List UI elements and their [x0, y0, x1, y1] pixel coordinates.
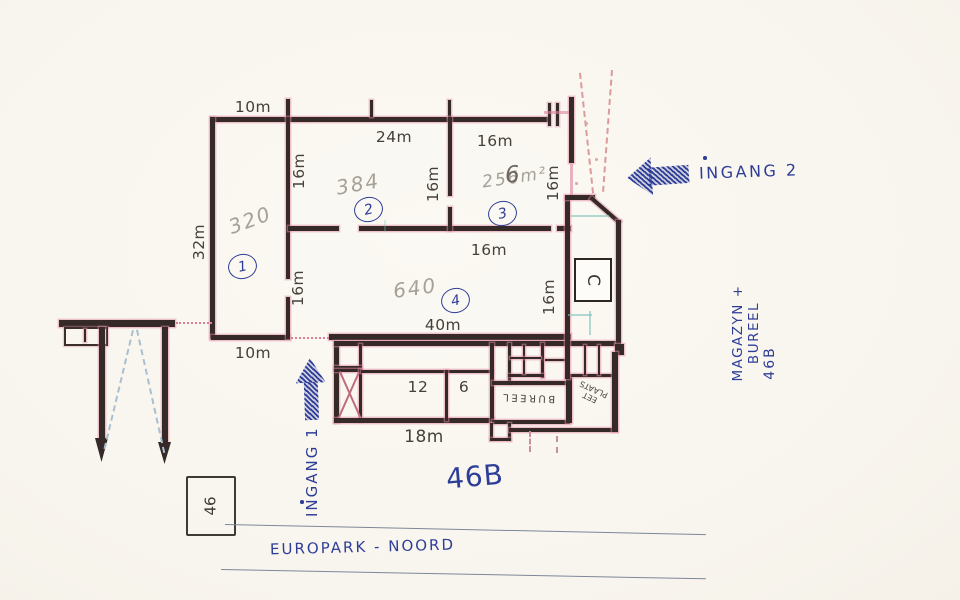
- wall-tick: [556, 103, 559, 126]
- wall-segment: [569, 97, 574, 163]
- wall-segment: [508, 343, 511, 384]
- ingang2-note: INGANG 2: [699, 160, 799, 182]
- parcel-46-label: 46: [202, 496, 220, 515]
- wall-tick: [286, 99, 290, 117]
- floor-plan-scan: C 10m 24m 16m 16m 16m 16m 16m 16m 16m 32…: [0, 0, 960, 600]
- dim-label-room4-left-16m: 16m: [289, 266, 307, 310]
- magazyn-46b-note: 46B: [762, 337, 778, 389]
- cyan-line: [589, 311, 591, 335]
- wall-segment: [523, 345, 525, 374]
- dashed-line: [556, 436, 558, 453]
- magazyn-bureel-note: MAGAZYN + BUREEL: [730, 251, 762, 415]
- wall-segment: [616, 220, 621, 348]
- doorway-dotted-line: [291, 337, 329, 339]
- wall-segment: [359, 344, 362, 368]
- dotted-connector: [176, 322, 212, 324]
- cyan-line: [571, 215, 609, 217]
- dim-label-room3-top-16m: 16m: [473, 132, 517, 150]
- stray-dot: [595, 158, 598, 161]
- wall-segment: [584, 345, 586, 375]
- dim-label-room2-left-16m: 16m: [290, 149, 308, 193]
- wall-segment: [510, 357, 541, 359]
- wall-segment: [448, 207, 452, 231]
- dim-label-room2-right-16m: 16m: [424, 162, 442, 206]
- ingang1-arrow: [295, 357, 327, 420]
- stray-dot: [585, 122, 588, 125]
- arrow-head: [295, 357, 326, 383]
- pencil-digit-overwrite: 6: [504, 161, 522, 188]
- parcel-46-box: 46: [186, 476, 236, 536]
- dim-label-32m: 32m: [190, 220, 208, 264]
- ingang2-arrow: [626, 155, 690, 197]
- wall-segment: [210, 117, 215, 339]
- wall-tick: [448, 100, 451, 117]
- wall-segment: [329, 334, 571, 340]
- room-number-3-text: 3: [496, 205, 508, 223]
- wall-segment: [286, 117, 290, 279]
- room-number-2-text: 2: [362, 201, 374, 219]
- dim-label-18m: 18m: [402, 427, 446, 447]
- wall-segment: [59, 320, 175, 327]
- ingang1-note: INGANG 1: [303, 417, 321, 517]
- dim-label-40m: 40m: [421, 316, 465, 334]
- bureel-room-label: BUREEL: [497, 391, 559, 404]
- wall-segment: [84, 329, 86, 342]
- wall-segment: [566, 374, 616, 377]
- wall-segment: [211, 117, 549, 122]
- wall-segment: [211, 335, 290, 340]
- wall-segment: [334, 418, 494, 423]
- wall-tick: [548, 103, 551, 126]
- site-46b-note: 46B: [445, 458, 505, 496]
- wall-segment: [545, 359, 567, 361]
- wall-tick: [370, 100, 373, 117]
- wall-segment: [541, 343, 544, 378]
- wall-segment: [490, 438, 511, 441]
- wall-segment: [334, 342, 339, 423]
- dim-label-bottom-10m: 10m: [231, 344, 275, 362]
- c-room-label: C: [583, 274, 603, 286]
- gate-post: [99, 327, 105, 445]
- dim-label-room4-right-16m: 16m: [540, 275, 558, 319]
- wall-segment: [445, 370, 448, 421]
- room-number-1-text: 1: [236, 258, 248, 276]
- marker-stroke: [544, 111, 570, 114]
- stray-dot: [575, 182, 578, 185]
- dashed-line: [529, 431, 531, 452]
- dim-label-room4-top-16m: 16m: [467, 241, 511, 259]
- arrow-body: [649, 165, 690, 185]
- wall-segment: [598, 345, 600, 375]
- wall-segment: [492, 420, 570, 424]
- wall-segment: [288, 226, 339, 231]
- wall-segment: [508, 374, 544, 377]
- c-room-box: C: [574, 258, 612, 302]
- dim-label-room12: 12: [404, 378, 432, 396]
- wall-segment: [509, 428, 617, 432]
- wall-segment: [448, 117, 452, 196]
- room-number-4-text: 4: [449, 292, 461, 310]
- wall-segment: [361, 370, 493, 373]
- arrow-body: [304, 381, 319, 420]
- wall-segment: [359, 226, 551, 231]
- dim-label-room6: 6: [452, 378, 476, 396]
- paper-background: [0, 0, 960, 600]
- gate-post: [162, 327, 168, 448]
- dim-label-24m: 24m: [372, 128, 416, 146]
- i-dot: [300, 500, 304, 504]
- dim-label-top-10m: 10m: [231, 98, 275, 116]
- wall-segment: [334, 341, 618, 346]
- wall-segment: [492, 381, 570, 385]
- wall-segment: [565, 197, 570, 379]
- cyan-line: [384, 220, 386, 232]
- i-dot: [703, 156, 707, 160]
- marker-stroke: [570, 164, 573, 197]
